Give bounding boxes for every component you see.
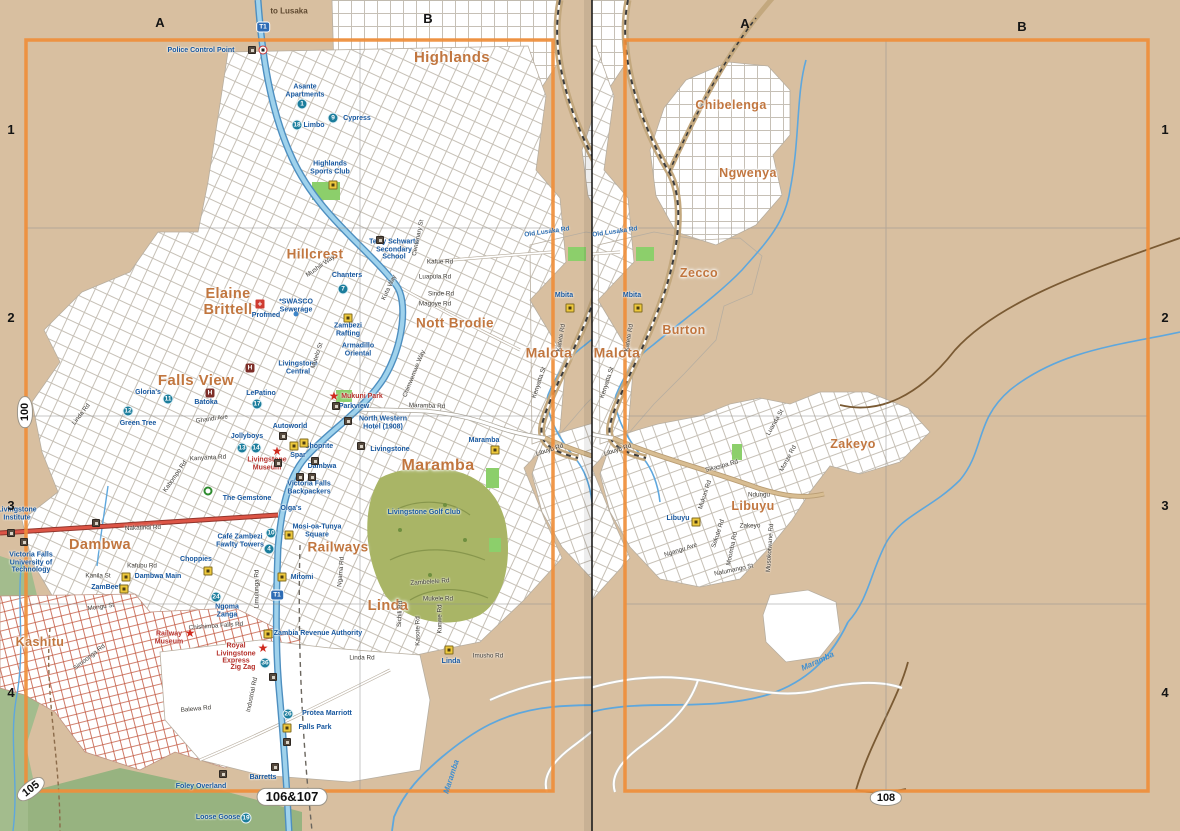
atlas-map-spread: HighlandsHillcrestElaine BrittellNott Br… xyxy=(0,0,1180,831)
gutter-shadow xyxy=(584,0,592,831)
map-artwork xyxy=(0,0,1180,831)
